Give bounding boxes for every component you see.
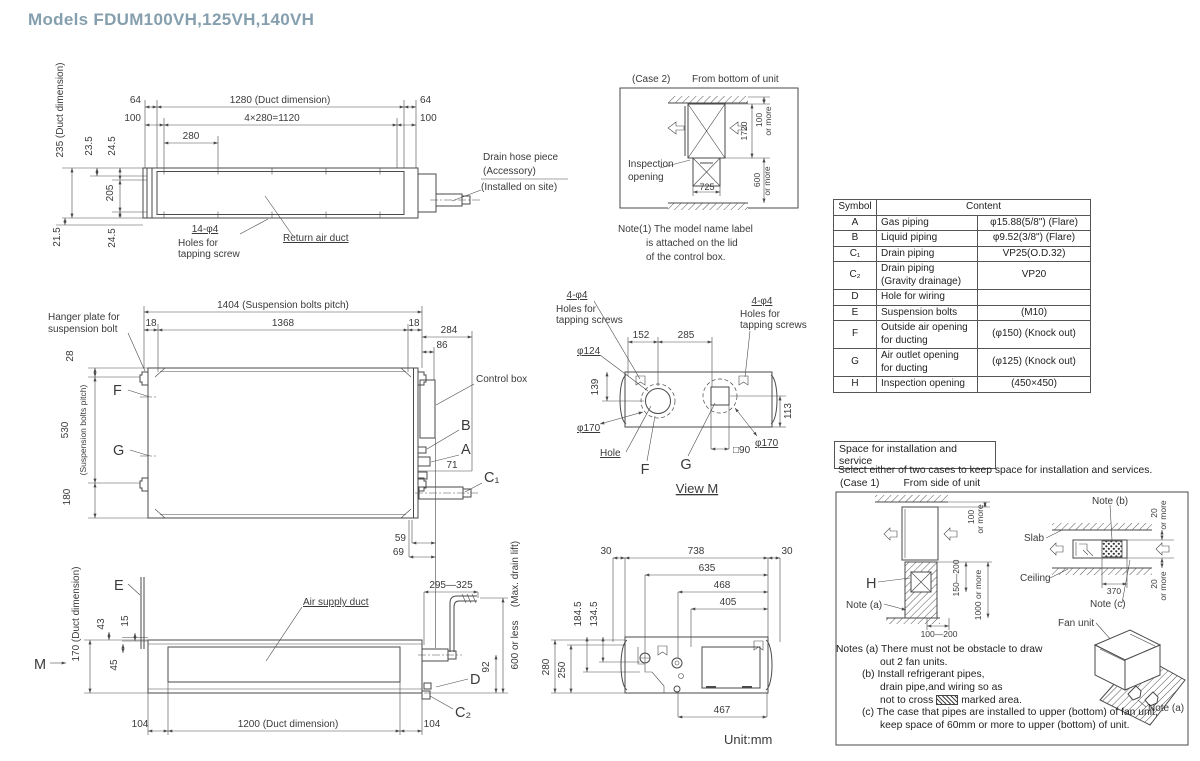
symbol-cell: A bbox=[834, 215, 877, 231]
dim-600: 600 bbox=[752, 173, 762, 187]
dim-100-right: 100 bbox=[420, 113, 437, 124]
top-view-return-air-duct: 64 1280 (Duct dimension) 64 100 4×280=11… bbox=[52, 62, 568, 260]
content-name: Gas piping bbox=[881, 217, 973, 230]
content-name: Drain piping bbox=[881, 263, 973, 276]
dim-69: 69 bbox=[393, 547, 405, 558]
dim-467: 467 bbox=[714, 705, 731, 716]
content-name: Air outlet opening bbox=[881, 350, 973, 363]
dim-64-right: 64 bbox=[420, 95, 432, 106]
tapping-holes-line1: Holes for bbox=[178, 238, 219, 249]
air-supply-duct-label: Air supply duct bbox=[303, 597, 369, 608]
table-row: A Gas piping φ15.88(5/8") (Flare) bbox=[834, 215, 1091, 231]
dim-600-or-less: 600 or less bbox=[510, 621, 521, 670]
content-name: Inspection opening bbox=[881, 378, 973, 391]
view-m: 152 285 φ124 139 φ170 113 φ170 Hole F G … bbox=[556, 290, 807, 496]
table-header-symbol: Symbol bbox=[834, 200, 877, 216]
dim-1280: 1280 (Duct dimension) bbox=[230, 95, 331, 106]
dim-104-right: 104 bbox=[424, 719, 441, 730]
dim-104-left: 104 bbox=[132, 719, 149, 730]
content-name-line2: for ducting bbox=[881, 335, 973, 348]
plan-label-c1: C₁ bbox=[484, 470, 499, 486]
dim-285: 285 bbox=[678, 330, 695, 341]
symbol-cell: B bbox=[834, 231, 877, 247]
dim-86: 86 bbox=[436, 340, 448, 351]
dim-1200: 1200 (Duct dimension) bbox=[238, 719, 339, 730]
install-dim-100-200: 100—200 bbox=[921, 629, 958, 639]
content-value-cell: VP25(O.D.32) bbox=[978, 246, 1091, 262]
table-row: H Inspection opening (450×450) bbox=[834, 377, 1091, 393]
max-drain-lift-label: (Max. drain lift) bbox=[510, 541, 521, 607]
install-dim-370: 370 bbox=[1107, 586, 1121, 596]
dim-15: 15 bbox=[120, 615, 131, 627]
view-m-holes-right-qty: 4-φ4 bbox=[752, 296, 773, 307]
view-m-holes-left-qty: 4-φ4 bbox=[567, 290, 588, 301]
table-row: E Suspension bolts (M10) bbox=[834, 305, 1091, 321]
symbol-content-table: Symbol Content A Gas piping φ15.88(5/8")… bbox=[833, 199, 1091, 393]
symbol-cell: C₁ bbox=[834, 246, 877, 262]
dim-205: 205 bbox=[105, 184, 116, 201]
view-m-label-f: F bbox=[641, 462, 650, 478]
note-b-line2: drain pipe,and wiring so as bbox=[880, 682, 1188, 695]
install-intro: Select either of two cases to keep space… bbox=[838, 465, 1152, 476]
symbol-cell: C₂ bbox=[834, 262, 877, 290]
dim-600-more: or more bbox=[762, 166, 772, 196]
case2-subtitle: From bottom of unit bbox=[692, 74, 779, 85]
table-row: G Air outlet openingfor ducting (φ125) (… bbox=[834, 349, 1091, 377]
table-row: D Hole for wiring bbox=[834, 290, 1091, 306]
dim-23-5: 23.5 bbox=[84, 136, 95, 156]
dim-phi124: φ124 bbox=[577, 346, 601, 357]
bottom-view: 30 738 30 635 468 405 184.5 134.5 280 bbox=[541, 546, 793, 747]
case2-label: (Case 2) bbox=[632, 74, 670, 85]
tapping-holes-qty: 14-φ4 bbox=[192, 224, 219, 235]
dim-1720: 1720 bbox=[739, 121, 749, 140]
dim-4x280: 4×280=1120 bbox=[244, 113, 300, 124]
content-value-cell: φ15.88(5/8") (Flare) bbox=[978, 215, 1091, 231]
front-label-m: M bbox=[34, 657, 46, 673]
plan-label-b: B bbox=[461, 418, 471, 434]
dim-18-right: 18 bbox=[408, 318, 420, 329]
dim-24-5-top: 24.5 bbox=[107, 136, 118, 156]
dim-1368: 1368 bbox=[272, 318, 295, 329]
dim-635: 635 bbox=[699, 563, 716, 574]
content-value-cell: φ9.52(3/8") (Flare) bbox=[978, 231, 1091, 247]
case2-inset: (Case 2) From bottom of unit 1720 bbox=[618, 74, 798, 263]
dim-18-left: 18 bbox=[145, 318, 157, 329]
content-name-cell: Air outlet openingfor ducting bbox=[877, 349, 978, 377]
view-m-holes-left-line1: Holes for bbox=[556, 304, 597, 315]
content-name-cell: Hole for wiring bbox=[877, 290, 978, 306]
suspension-pitch-label: (Suspension bolts pitch) bbox=[78, 384, 88, 475]
dim-152: 152 bbox=[633, 330, 650, 341]
front-view: E 43 15 45 170 (Duct dimension) M Air su… bbox=[34, 541, 521, 735]
dim-21-5: 21.5 bbox=[52, 227, 63, 247]
install-notes: Notes (a) There must not be obstacle to … bbox=[836, 644, 1188, 733]
content-value-cell: (φ150) (Knock out) bbox=[978, 321, 1091, 349]
view-m-holes-right-line1: Holes for bbox=[740, 309, 781, 320]
dim-28: 28 bbox=[65, 350, 76, 362]
dim-92: 92 bbox=[481, 661, 492, 673]
dim-113: 113 bbox=[783, 403, 794, 419]
note-a-line1: Notes (a) There must not be obstacle to … bbox=[836, 644, 1188, 657]
view-m-title: View M bbox=[676, 481, 718, 496]
view-m-holes-left-line2: tapping screws bbox=[556, 315, 623, 326]
content-value-cell: (M10) bbox=[978, 305, 1091, 321]
plan-label-a: A bbox=[461, 442, 471, 458]
content-name: Drain piping bbox=[881, 248, 973, 261]
dim-45: 45 bbox=[109, 659, 120, 671]
symbol-cell: F bbox=[834, 321, 877, 349]
install-dim-20-top-more: or more bbox=[1158, 500, 1168, 530]
dim-280: 280 bbox=[541, 658, 552, 675]
dim-30-left: 30 bbox=[600, 546, 612, 557]
symbol-cell: G bbox=[834, 349, 877, 377]
dim-295-325: 295—325 bbox=[429, 580, 473, 591]
install-note-b-label: Note (b) bbox=[1092, 496, 1128, 507]
hatch-swatch-icon bbox=[936, 695, 958, 705]
dim-725: 725 bbox=[699, 182, 714, 192]
table-row: C₂ Drain piping(Gravity drainage) VP20 bbox=[834, 262, 1091, 290]
dim-170: 170 (Duct dimension) bbox=[71, 566, 82, 661]
install-case1-line: (Case 1)From side of unit bbox=[840, 478, 980, 489]
install-dim-1000-more: 1000 or more bbox=[973, 569, 983, 620]
unit-label: Unit:mm bbox=[724, 732, 772, 747]
drain-hose-line1: Drain hose piece bbox=[483, 152, 558, 163]
plan-label-g: G bbox=[113, 443, 124, 459]
note-b-line1: (b) Install refrigerant pipes, bbox=[862, 669, 1188, 682]
view-m-label-g: G bbox=[680, 457, 691, 473]
dim-90: □90 bbox=[733, 445, 751, 456]
table-row: F Outside air openingfor ducting (φ150) … bbox=[834, 321, 1091, 349]
note-c-line1: (c) The case that pipes are installed to… bbox=[862, 707, 1188, 720]
inspection-opening-line2: opening bbox=[628, 172, 664, 183]
symbol-cell: D bbox=[834, 290, 877, 306]
table-row: B Liquid piping φ9.52(3/8") (Flare) bbox=[834, 231, 1091, 247]
dim-738: 738 bbox=[688, 546, 705, 557]
content-name-cell: Liquid piping bbox=[877, 231, 978, 247]
table-row: C₁ Drain piping VP25(O.D.32) bbox=[834, 246, 1091, 262]
dim-280: 280 bbox=[183, 131, 200, 142]
content-value-cell bbox=[978, 290, 1091, 306]
slab-label: Slab bbox=[1024, 533, 1044, 544]
dim-1404: 1404 (Suspension bolts pitch) bbox=[217, 300, 349, 311]
content-value-cell: VP20 bbox=[978, 262, 1091, 290]
content-name-cell: Suspension bolts bbox=[877, 305, 978, 321]
content-value-cell: (φ125) (Knock out) bbox=[978, 349, 1091, 377]
plan-label-f: F bbox=[113, 383, 122, 399]
case1-subtitle: From side of unit bbox=[903, 478, 980, 489]
note-b-line3-pre: not to cross bbox=[880, 695, 933, 706]
control-box-label: Control box bbox=[476, 374, 527, 385]
front-label-c2: C₂ bbox=[455, 705, 471, 721]
inspection-opening-line1: Inspection bbox=[628, 159, 674, 170]
content-name: Suspension bolts bbox=[881, 307, 973, 320]
content-value-cell: (450×450) bbox=[978, 377, 1091, 393]
content-name-line2: (Gravity drainage) bbox=[881, 276, 973, 289]
ceiling-label: Ceiling bbox=[1020, 573, 1051, 584]
dim-184-5: 184.5 bbox=[573, 601, 584, 626]
case2-note-line3: of the control box. bbox=[646, 252, 726, 263]
install-dim-150-200: 150—200 bbox=[951, 559, 961, 596]
front-label-d: D bbox=[470, 672, 480, 688]
install-dim-100-more: or more bbox=[975, 504, 985, 534]
hanger-plate-line2: suspension bolt bbox=[48, 324, 118, 335]
install-note-c-label: Note (c) bbox=[1090, 599, 1126, 610]
drain-hose-line3: (Installed on site) bbox=[481, 182, 557, 193]
dim-180: 180 bbox=[62, 488, 73, 505]
note-a-line2: out 2 fan units. bbox=[880, 657, 1188, 670]
dim-100-left: 100 bbox=[124, 113, 141, 124]
case2-note-line1: Note(1) The model name label bbox=[618, 224, 753, 235]
hanger-plate-line1: Hanger plate for bbox=[48, 312, 120, 323]
dim-235: 235 (Duct dimension) bbox=[55, 62, 66, 157]
dim-71: 71 bbox=[446, 460, 458, 471]
install-label-h: H bbox=[866, 576, 876, 592]
dim-30-right: 30 bbox=[781, 546, 793, 557]
content-name-cell: Gas piping bbox=[877, 215, 978, 231]
content-name-cell: Drain piping bbox=[877, 246, 978, 262]
dim-24-5-bottom: 24.5 bbox=[107, 228, 118, 248]
content-name-cell: Inspection opening bbox=[877, 377, 978, 393]
case1-label: (Case 1) bbox=[840, 478, 879, 489]
case2-note-line2: is attached on the lid bbox=[646, 238, 738, 249]
dim-phi170-left: φ170 bbox=[577, 423, 601, 434]
dim-405: 405 bbox=[720, 597, 737, 608]
content-name-cell: Drain piping(Gravity drainage) bbox=[877, 262, 978, 290]
dim-59: 59 bbox=[395, 533, 407, 544]
dim-64-left: 64 bbox=[130, 95, 142, 106]
note-b-line3: not to crossmarked area. bbox=[880, 695, 1188, 708]
return-air-duct-label: Return air duct bbox=[283, 233, 349, 244]
view-m-holes-right-line2: tapping screws bbox=[740, 320, 807, 331]
front-label-e: E bbox=[114, 578, 124, 594]
install-dim-20-bottom-more: or more bbox=[1158, 571, 1168, 601]
symbol-cell: H bbox=[834, 377, 877, 393]
content-name-line2: for ducting bbox=[881, 363, 973, 376]
hole-label: Hole bbox=[600, 448, 621, 459]
content-name: Outside air opening bbox=[881, 322, 973, 335]
dim-530: 530 bbox=[60, 421, 71, 438]
install-note-a-label: Note (a) bbox=[846, 600, 882, 611]
fan-unit-label: Fan unit bbox=[1058, 618, 1094, 629]
drawing-page: Models FDUM100VH,125VH,140VH bbox=[0, 0, 1200, 761]
dim-284: 284 bbox=[441, 325, 458, 336]
dim-phi170-right: φ170 bbox=[755, 438, 779, 449]
dim-250: 250 bbox=[557, 661, 568, 678]
note-c-line2: keep space of 60mm or more to upper (bot… bbox=[880, 720, 1188, 733]
content-name-cell: Outside air openingfor ducting bbox=[877, 321, 978, 349]
dim-100-more: or more bbox=[763, 106, 773, 136]
dim-139: 139 bbox=[590, 378, 601, 395]
note-b-line3-post: marked area. bbox=[961, 695, 1022, 706]
dim-134-5: 134.5 bbox=[589, 601, 600, 626]
drain-hose-line2: (Accessory) bbox=[483, 166, 536, 177]
content-name: Hole for wiring bbox=[881, 291, 973, 304]
symbol-cell: E bbox=[834, 305, 877, 321]
content-name: Liquid piping bbox=[881, 232, 973, 245]
dim-43: 43 bbox=[96, 618, 107, 630]
dim-468: 468 bbox=[714, 580, 731, 591]
table-header-content: Content bbox=[877, 200, 1091, 216]
tapping-holes-line2: tapping screw bbox=[178, 249, 240, 260]
